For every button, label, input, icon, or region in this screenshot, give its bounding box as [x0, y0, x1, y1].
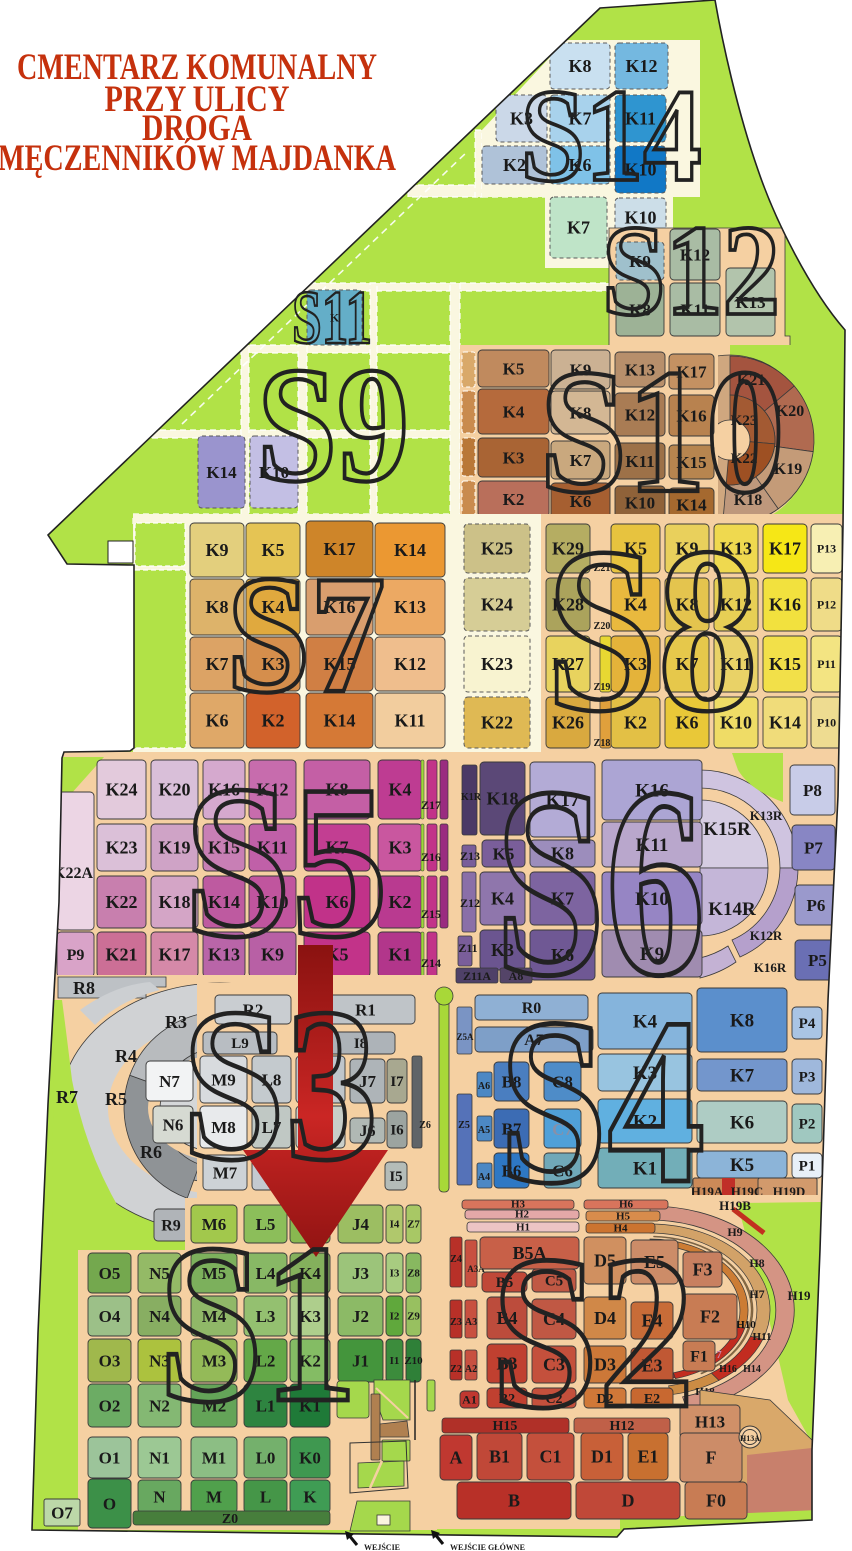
svg-text:P13: P13	[817, 542, 836, 556]
svg-text:WEJŚCIE GŁÓWNE: WEJŚCIE GŁÓWNE	[450, 1542, 525, 1551]
svg-text:S3: S3	[182, 964, 378, 1206]
svg-text:S14: S14	[521, 61, 702, 209]
svg-text:S7: S7	[227, 540, 386, 728]
svg-text:A3: A3	[465, 1317, 477, 1328]
svg-text:K16: K16	[769, 595, 801, 615]
svg-text:P3: P3	[799, 1070, 816, 1086]
svg-text:P11: P11	[817, 657, 836, 671]
svg-text:A4: A4	[478, 1172, 490, 1183]
svg-text:K0: K0	[299, 1448, 321, 1467]
svg-text:F3: F3	[693, 1260, 713, 1280]
svg-text:N6: N6	[163, 1115, 184, 1134]
svg-text:K1R: K1R	[461, 792, 482, 803]
svg-text:K13: K13	[394, 597, 426, 617]
svg-text:K3: K3	[503, 448, 525, 467]
svg-text:K4: K4	[388, 780, 411, 800]
svg-text:H19B: H19B	[719, 1198, 751, 1213]
svg-text:K2: K2	[388, 892, 411, 912]
svg-text:P10: P10	[817, 716, 836, 730]
svg-text:H9: H9	[727, 1225, 742, 1239]
svg-text:Z0: Z0	[222, 1512, 238, 1527]
svg-text:L: L	[260, 1487, 271, 1506]
svg-text:K7: K7	[567, 218, 590, 238]
svg-text:I5: I5	[389, 1169, 402, 1185]
svg-text:K23: K23	[481, 654, 513, 674]
svg-text:P8: P8	[803, 781, 822, 800]
svg-text:K6: K6	[730, 1112, 754, 1133]
svg-text:Z5A: Z5A	[456, 1032, 474, 1042]
svg-text:F: F	[706, 1448, 717, 1468]
svg-text:N7: N7	[159, 1072, 180, 1091]
svg-text:P9: P9	[67, 947, 85, 964]
svg-text:K13R: K13R	[750, 808, 783, 823]
svg-text:O1: O1	[99, 1448, 121, 1467]
svg-text:Z11: Z11	[458, 941, 477, 955]
svg-text:S5: S5	[184, 741, 388, 983]
svg-text:K14: K14	[206, 463, 237, 482]
svg-text:Z6: Z6	[419, 1120, 431, 1131]
svg-text:K24: K24	[481, 595, 513, 615]
svg-text:H8: H8	[749, 1256, 764, 1270]
svg-text:K15R: K15R	[703, 819, 751, 840]
svg-text:P4: P4	[799, 1016, 816, 1032]
svg-text:I1: I1	[390, 1355, 400, 1367]
svg-text:A6: A6	[478, 1081, 490, 1092]
svg-text:R8: R8	[73, 978, 95, 998]
svg-text:S1: S1	[159, 1198, 358, 1450]
svg-text:P2: P2	[799, 1117, 816, 1133]
svg-text:A1: A1	[462, 1393, 477, 1407]
svg-text:K7: K7	[205, 654, 228, 674]
svg-text:S8: S8	[546, 500, 758, 761]
svg-text:Z7: Z7	[407, 1219, 420, 1231]
svg-text:Z12: Z12	[460, 896, 480, 910]
svg-text:O2: O2	[99, 1396, 121, 1415]
svg-text:K23: K23	[105, 838, 137, 858]
svg-text:Z13: Z13	[460, 849, 480, 863]
svg-text:K14: K14	[394, 540, 426, 560]
svg-text:P7: P7	[804, 838, 823, 857]
svg-text:K25: K25	[481, 539, 513, 559]
svg-text:P5: P5	[808, 951, 827, 970]
svg-text:S4: S4	[499, 970, 705, 1233]
svg-text:Z11A: Z11A	[463, 969, 491, 983]
svg-text:I7: I7	[390, 1074, 404, 1090]
svg-text:K24: K24	[105, 780, 137, 800]
svg-text:Z16: Z16	[421, 850, 441, 864]
svg-text:K12: K12	[394, 654, 426, 674]
svg-text:H19: H19	[787, 1288, 811, 1303]
svg-text:K5: K5	[503, 359, 525, 378]
svg-text:K22: K22	[105, 892, 137, 912]
svg-text:H16: H16	[719, 1364, 737, 1375]
svg-text:I4: I4	[390, 1219, 400, 1231]
svg-text:A2: A2	[465, 1364, 477, 1375]
svg-text:K17: K17	[769, 539, 801, 559]
svg-text:K12R: K12R	[750, 928, 783, 943]
svg-text:K21: K21	[105, 945, 137, 965]
svg-text:Z3: Z3	[450, 1317, 462, 1328]
svg-text:H14: H14	[743, 1364, 761, 1375]
svg-text:I3: I3	[390, 1268, 400, 1280]
svg-text:K11: K11	[394, 711, 425, 731]
svg-text:S12: S12	[602, 199, 780, 343]
svg-text:O7: O7	[51, 1503, 73, 1522]
svg-text:F2: F2	[700, 1307, 720, 1327]
svg-text:K6: K6	[205, 711, 228, 731]
svg-text:M1: M1	[202, 1448, 227, 1467]
svg-text:K2: K2	[503, 490, 525, 509]
svg-text:K7: K7	[730, 1065, 755, 1086]
svg-text:Z9: Z9	[407, 1311, 420, 1323]
svg-text:N: N	[153, 1487, 166, 1506]
svg-text:H13A: H13A	[740, 1434, 760, 1443]
svg-text:H7: H7	[749, 1287, 764, 1301]
svg-text:MĘCZENNIKÓW MAJDANKA: MĘCZENNIKÓW MAJDANKA	[0, 137, 396, 179]
svg-text:Z14: Z14	[421, 956, 441, 970]
svg-text:D: D	[622, 1491, 635, 1511]
svg-text:K22: K22	[481, 713, 513, 733]
svg-text:P6: P6	[807, 896, 826, 915]
svg-text:S9: S9	[257, 333, 409, 516]
svg-text:Z5: Z5	[458, 1120, 470, 1131]
svg-text:H10: H10	[736, 1319, 756, 1331]
svg-text:K3: K3	[388, 838, 411, 858]
svg-text:O: O	[103, 1494, 116, 1513]
svg-text:K4: K4	[503, 402, 525, 421]
svg-text:K8: K8	[730, 1010, 754, 1031]
svg-text:K16R: K16R	[754, 960, 787, 975]
svg-text:A: A	[450, 1448, 463, 1468]
svg-text:F0: F0	[706, 1491, 726, 1511]
svg-text:A5: A5	[478, 1125, 490, 1136]
svg-text:N1: N1	[149, 1448, 170, 1467]
svg-text:B: B	[508, 1491, 520, 1511]
svg-text:K8: K8	[205, 597, 228, 617]
svg-text:I6: I6	[390, 1123, 404, 1139]
svg-text:I2: I2	[390, 1311, 400, 1323]
svg-text:K9: K9	[205, 540, 228, 560]
svg-text:M: M	[206, 1487, 222, 1506]
svg-text:R7: R7	[56, 1087, 78, 1107]
svg-text:R4: R4	[115, 1046, 137, 1066]
svg-text:O5: O5	[99, 1264, 121, 1283]
svg-text:K14: K14	[769, 713, 801, 733]
svg-text:Z10: Z10	[404, 1355, 423, 1367]
svg-text:H11: H11	[753, 1331, 772, 1343]
svg-text:H13: H13	[695, 1412, 725, 1431]
svg-text:Z2: Z2	[450, 1364, 462, 1375]
svg-text:Z17: Z17	[421, 798, 441, 812]
svg-text:R5: R5	[105, 1089, 127, 1109]
svg-text:P12: P12	[817, 598, 836, 612]
svg-text:P1: P1	[799, 1159, 816, 1175]
svg-text:S2: S2	[492, 1210, 695, 1454]
svg-text:Z15: Z15	[421, 907, 441, 921]
svg-text:K5: K5	[730, 1155, 754, 1176]
svg-text:WEJŚCIE: WEJŚCIE	[364, 1542, 400, 1551]
svg-text:K15: K15	[769, 654, 801, 674]
svg-text:Z4: Z4	[450, 1254, 462, 1265]
svg-text:Z8: Z8	[407, 1268, 420, 1280]
svg-text:O4: O4	[99, 1307, 121, 1326]
svg-text:K: K	[303, 1487, 317, 1506]
svg-text:O3: O3	[99, 1351, 121, 1370]
svg-text:K1: K1	[388, 945, 411, 965]
svg-text:K14R: K14R	[708, 899, 756, 920]
svg-text:L0: L0	[256, 1448, 276, 1467]
svg-text:R6: R6	[140, 1142, 162, 1162]
